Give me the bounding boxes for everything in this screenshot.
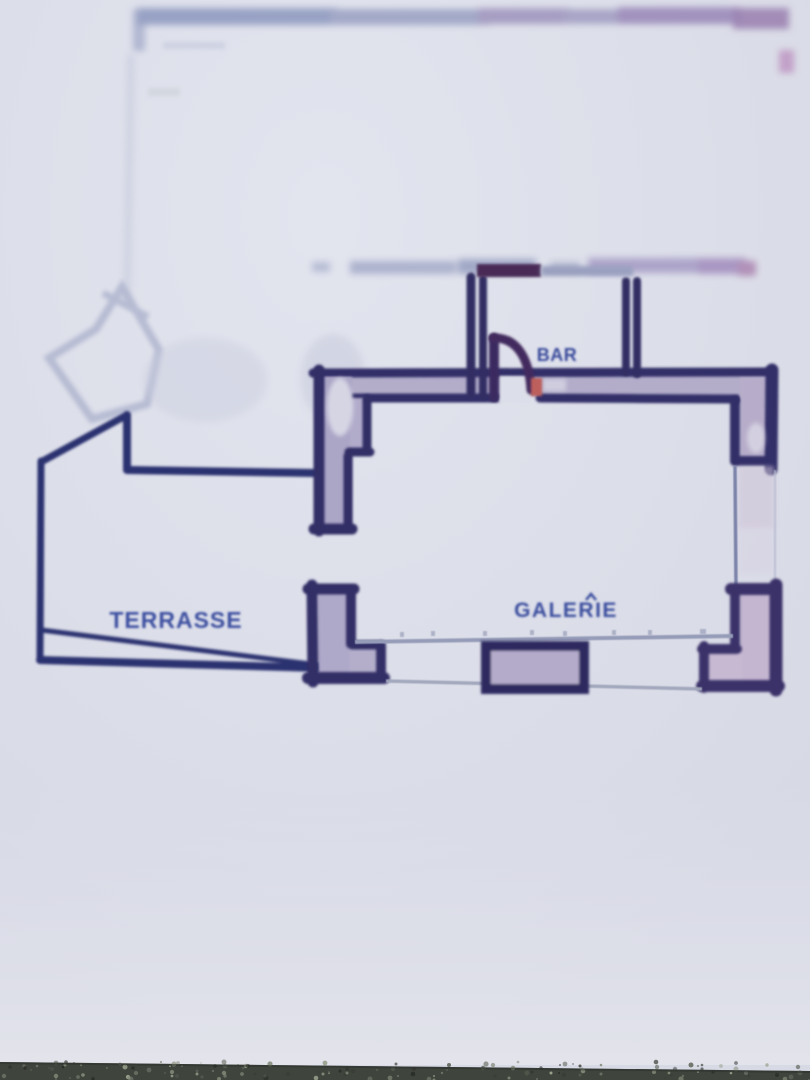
svg-text:BAR: BAR [537, 345, 578, 365]
svg-text:TERRASSE: TERRASSE [109, 607, 242, 633]
svg-text:GALERIE: GALERIE [514, 599, 618, 622]
